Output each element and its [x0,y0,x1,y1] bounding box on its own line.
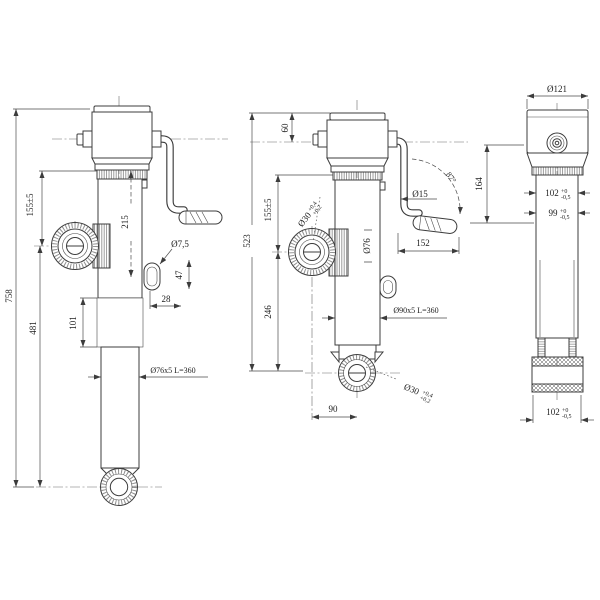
right-view: Ø121 164 102 +0 -0,5 99 +0 -0,5 102 +0 -… [470,84,594,423]
dim-mid-lower-label: 246 [263,305,273,319]
dim-right-flat-a-label: 102 [545,188,559,198]
dim-mid-crank-dia-label: Ø15 [412,189,428,199]
dim-left-overlap-label: 101 [68,316,78,330]
dim-left-stroke-label: 215 [120,215,130,229]
technical-drawing-jack: 758 481 155±5 215 101 28 Ø7,5 47 Ø76x5 L… [0,0,600,600]
left-inner-tube [101,347,139,474]
middle-bottom-eye [331,345,383,392]
left-side-mount-eye [52,223,111,270]
dim-mid-eye-offset-label: 155±5 [263,198,273,221]
middle-gear-head [313,113,397,180]
right-gear-head [527,110,588,175]
middle-side-mount-eye [289,229,349,277]
middle-view: 523 60 155±5 246 Ø90x5 L=360 Ø76 Ø15 87°… [242,100,468,420]
middle-crank-handle [392,141,458,234]
dim-mid-top-label: 60 [280,123,290,133]
dim-mid-lower-eye-bore: Ø30 +0,4 +0,2 [401,381,434,405]
left-gear-head [77,106,161,179]
dim-mid-upper-eye-bore: Ø30 +0,4 +0,2 [296,200,324,230]
dim-right-flat-c-label: 102 [546,407,560,417]
left-view: 758 481 155±5 215 101 28 Ø7,5 47 Ø76x5 L… [4,96,228,506]
flat-b-tol-lo: -0,5 [560,215,570,221]
dim-right-head-dia-label: Ø121 [547,84,567,94]
left-handle-clip [144,263,160,290]
right-tube [532,175,583,392]
dim-mid-eye-base-label: 90 [329,404,339,414]
lower-eye-bore-value: Ø30 [402,381,421,396]
left-bottom-eye [101,469,138,506]
drawing-canvas: 758 481 155±5 215 101 28 Ø7,5 47 Ø76x5 L… [0,0,600,600]
dim-mid-crank-angle-label: 87° [444,170,458,184]
dim-left-hole-label: Ø7,5 [171,239,189,249]
dim-mid-crank-len-label: 152 [416,238,430,248]
dim-mid-total-label: 523 [242,234,252,248]
dim-left-28-label: 28 [162,294,172,304]
dim-right-head-len-label: 164 [474,177,484,191]
dim-left-lower-label: 481 [28,321,38,335]
left-crank-handle [156,139,222,224]
flat-a-tol-lo: -0,5 [561,195,571,201]
flat-c-tol-lo: -0,5 [562,414,572,420]
dim-left-tube-label: Ø76x5 L=360 [150,366,195,375]
dim-mid-tube-label: Ø90x5 L=360 [393,306,438,315]
dim-left-slot-label: 47 [174,270,184,280]
dim-right-flat-b-label: 99 [549,208,559,218]
dim-left-eye-offset-label: 155±5 [25,193,35,216]
dim-left-total-label: 758 [4,289,14,303]
dim-mid-tube-inner-label: Ø76 [362,238,372,254]
